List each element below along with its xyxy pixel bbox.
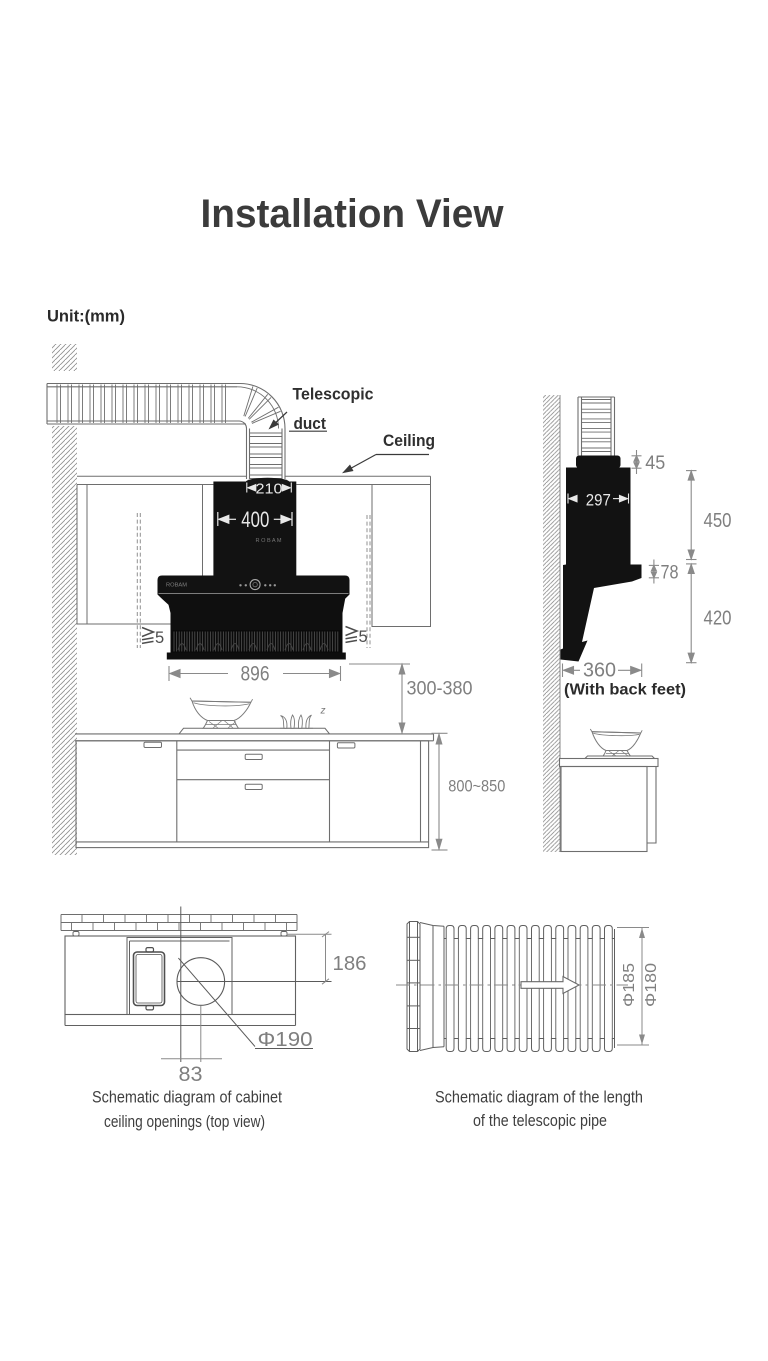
svg-text:Installation View: Installation View: [201, 192, 505, 236]
svg-text:R O B A M: R O B A M: [256, 538, 282, 544]
svg-text:5: 5: [155, 629, 164, 647]
svg-text:896: 896: [241, 663, 270, 686]
svg-text:210: 210: [256, 481, 283, 498]
svg-text:5: 5: [359, 628, 368, 646]
svg-text:z: z: [320, 706, 326, 717]
svg-text:(With back feet): (With back feet): [564, 682, 686, 699]
svg-text:Unit:(mm): Unit:(mm): [47, 307, 125, 326]
svg-text:420: 420: [704, 608, 732, 630]
svg-text:83: 83: [179, 1063, 203, 1086]
svg-text:Ceiling: Ceiling: [383, 431, 435, 450]
svg-text:300-380: 300-380: [407, 679, 473, 700]
svg-text:45: 45: [645, 453, 665, 474]
svg-text:450: 450: [704, 510, 732, 532]
svg-text:Telescopic: Telescopic: [293, 385, 374, 404]
svg-text:duct: duct: [294, 414, 327, 433]
svg-text:of the telescopic pipe: of the telescopic pipe: [473, 1112, 607, 1130]
svg-text:297: 297: [586, 491, 611, 510]
svg-text:800~850: 800~850: [448, 777, 505, 796]
svg-text:Schematic diagram of the lengt: Schematic diagram of the length: [435, 1089, 643, 1107]
svg-text:Φ185: Φ185: [621, 963, 638, 1007]
svg-text:Schematic diagram of cabinet: Schematic diagram of cabinet: [92, 1089, 282, 1107]
svg-text:ROBAM: ROBAM: [166, 583, 187, 589]
svg-text:400: 400: [241, 507, 269, 532]
svg-text:186: 186: [333, 953, 367, 975]
svg-text:ceiling openings (top view): ceiling openings (top view): [104, 1113, 265, 1131]
svg-text:Φ180: Φ180: [643, 963, 660, 1007]
svg-text:360: 360: [583, 659, 616, 681]
svg-text:78: 78: [661, 563, 679, 584]
svg-text:Φ190: Φ190: [258, 1029, 313, 1051]
